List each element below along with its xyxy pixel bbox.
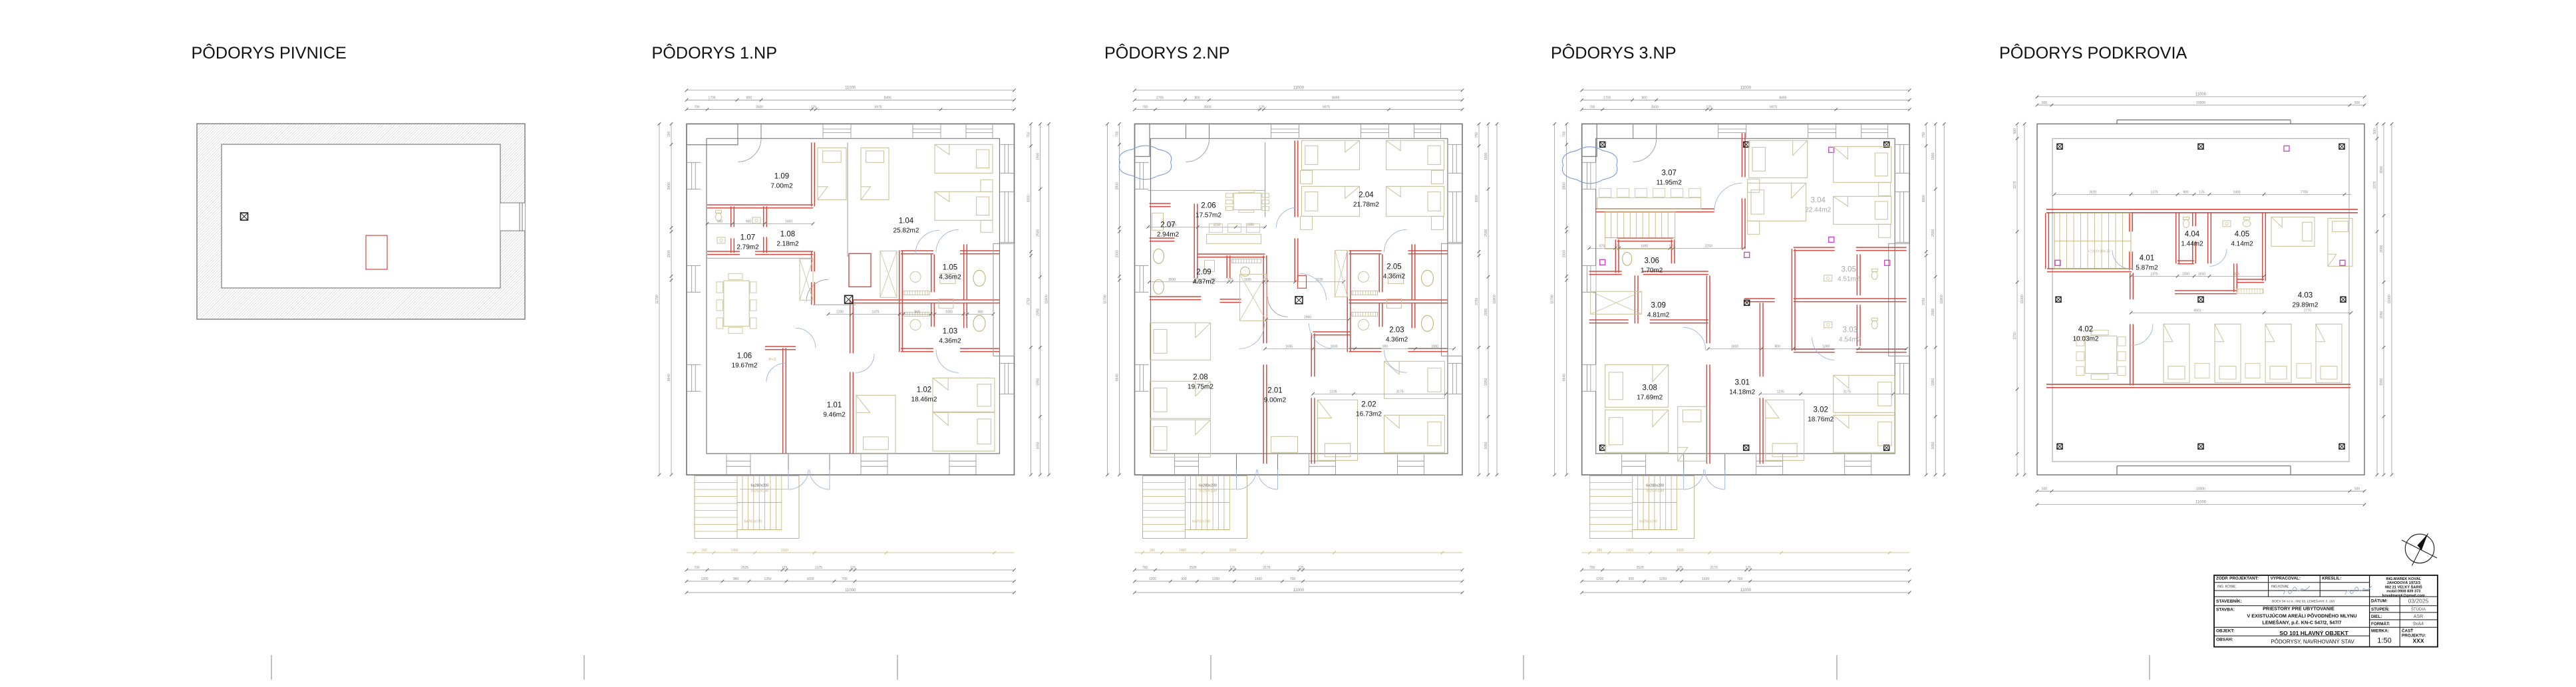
svg-text:3500: 3500 [756, 106, 763, 110]
svg-text:03/2025: 03/2025 [2408, 598, 2429, 605]
svg-text:6501: 6501 [2193, 309, 2201, 313]
svg-text:1250: 1250 [1212, 577, 1219, 581]
svg-text:3.01: 3.01 [1735, 378, 1750, 386]
svg-text:3000: 3000 [2380, 166, 2384, 174]
svg-text:125: 125 [1263, 278, 1269, 282]
svg-text:1500: 1500 [1168, 278, 1176, 282]
svg-text:980: 980 [977, 310, 983, 314]
svg-text:6x280x200: 6x280x200 [751, 484, 769, 488]
svg-text:1200: 1200 [1596, 577, 1603, 581]
svg-text:3000: 3000 [1922, 195, 1926, 202]
svg-text:3750: 3750 [1027, 298, 1031, 305]
svg-text:3.06: 3.06 [1645, 257, 1659, 265]
svg-text:2050: 2050 [1484, 309, 1488, 316]
svg-text:4.03: 4.03 [2298, 291, 2313, 299]
svg-text:2.09: 2.09 [1196, 268, 1211, 276]
svg-text:2175: 2175 [1263, 566, 1270, 570]
svg-text:25.82m2: 25.82m2 [893, 227, 919, 234]
svg-text:7705: 7705 [2301, 190, 2308, 194]
svg-text:1900: 1900 [1931, 153, 1935, 160]
svg-text:700: 700 [1737, 577, 1743, 581]
svg-text:1235: 1235 [1777, 390, 1784, 394]
svg-text:1830: 1830 [1330, 344, 1337, 348]
svg-text:11000: 11000 [2020, 295, 2024, 304]
svg-text:3375: 3375 [2373, 182, 2377, 189]
svg-text:1650: 1650 [1037, 442, 1041, 449]
svg-text:2000: 2000 [1229, 549, 1236, 553]
svg-text:2.18m2: 2.18m2 [776, 240, 799, 247]
svg-text:1705: 1705 [708, 96, 715, 100]
svg-text:2800: 2800 [667, 182, 671, 190]
svg-text:2770: 2770 [2304, 309, 2311, 313]
svg-text:5.87m2: 5.87m2 [2136, 264, 2158, 271]
svg-text:1900: 1900 [2233, 190, 2240, 194]
svg-text:500: 500 [2042, 487, 2048, 491]
svg-text:1.05: 1.05 [943, 263, 957, 271]
svg-text:2.79m2: 2.79m2 [736, 243, 759, 251]
svg-text:9x250x190: 9x250x190 [1199, 489, 1217, 493]
svg-text:1.44m2: 1.44m2 [2181, 240, 2203, 247]
svg-text:175: 175 [2199, 190, 2205, 194]
svg-text:125: 125 [811, 106, 817, 110]
svg-text:ING.MAREK KOVAĽ: ING.MAREK KOVAĽ [2386, 577, 2421, 581]
svg-text:4.36m2: 4.36m2 [939, 337, 961, 344]
svg-text:1375: 1375 [2150, 190, 2158, 194]
svg-text:900: 900 [746, 219, 752, 223]
svg-text:17.57m2: 17.57m2 [1196, 211, 1221, 219]
svg-text:800: 800 [1194, 96, 1200, 100]
svg-text:1950: 1950 [1484, 378, 1488, 386]
svg-text:2050: 2050 [1931, 309, 1935, 316]
svg-text:9x250x190: 9x250x190 [751, 489, 769, 493]
svg-text:8495: 8495 [1332, 96, 1339, 100]
svg-text:4.37m2: 4.37m2 [1193, 278, 1215, 285]
svg-text:700: 700 [1290, 577, 1296, 581]
svg-text:1000: 1000 [945, 310, 953, 314]
svg-text:3.09: 3.09 [1651, 301, 1666, 309]
svg-text:ZODP. PROJEKTANT:: ZODP. PROJEKTANT: [2216, 577, 2259, 581]
svg-text:5975: 5975 [1323, 106, 1330, 110]
svg-text:PÔDORYS 2.NP: PÔDORYS 2.NP [1104, 43, 1230, 63]
svg-text:900: 900 [1629, 577, 1635, 581]
svg-text:ČASŤ: ČASŤ [2402, 628, 2413, 634]
svg-text:750: 750 [1475, 132, 1479, 138]
svg-text:700: 700 [1589, 106, 1595, 110]
svg-text:PRIESTORY PRE UBYTOVANIE: PRIESTORY PRE UBYTOVANIE [2263, 606, 2334, 612]
svg-text:2250: 2250 [1705, 244, 1712, 248]
svg-text:1705: 1705 [1156, 96, 1164, 100]
svg-text:11000: 11000 [1740, 589, 1752, 593]
svg-text:2525: 2525 [1189, 566, 1196, 570]
svg-text:3750: 3750 [1922, 298, 1926, 305]
svg-text:700: 700 [1589, 566, 1595, 570]
svg-text:5975: 5975 [1770, 106, 1777, 110]
svg-text:KRESLIL:: KRESLIL: [2322, 577, 2341, 581]
svg-text:700: 700 [842, 577, 848, 581]
svg-text:8640: 8640 [1563, 374, 1567, 381]
svg-text:19.75m2: 19.75m2 [1188, 383, 1213, 390]
svg-text:500: 500 [2013, 128, 2017, 134]
svg-text:3750: 3750 [2013, 332, 2017, 339]
svg-text:10.03m2: 10.03m2 [2073, 335, 2099, 343]
svg-text:11000: 11000 [1740, 86, 1752, 90]
svg-text:2175: 2175 [815, 566, 822, 570]
svg-text:125: 125 [1229, 566, 1235, 570]
svg-text:4.05: 4.05 [2235, 230, 2249, 238]
svg-text:11790: 11790 [1104, 295, 1108, 304]
svg-text:10000: 10000 [2196, 487, 2205, 491]
svg-text:750: 750 [1027, 132, 1031, 138]
svg-text:1.07: 1.07 [740, 233, 755, 241]
svg-text:280: 280 [1597, 549, 1603, 553]
svg-text:3.02: 3.02 [1814, 406, 1828, 414]
svg-text:1500: 1500 [1116, 250, 1120, 257]
svg-text:3000: 3000 [1027, 195, 1031, 202]
svg-text:DIEL:: DIEL: [2371, 615, 2382, 619]
svg-text:1400: 1400 [730, 549, 738, 553]
svg-text:10000: 10000 [2196, 101, 2205, 105]
svg-text:2800: 2800 [1563, 182, 1567, 190]
svg-text:1475: 1475 [872, 310, 879, 314]
svg-text:1830: 1830 [1731, 344, 1738, 348]
svg-text:5975: 5975 [874, 106, 882, 110]
svg-text:11000: 11000 [2195, 501, 2207, 505]
svg-text:2050: 2050 [2380, 311, 2384, 319]
svg-text:11800: 11800 [1045, 295, 1049, 304]
svg-text:2.02: 2.02 [1361, 400, 1376, 408]
svg-text:11000: 11000 [2195, 93, 2207, 97]
svg-text:8640: 8640 [1116, 374, 1120, 381]
svg-text:STUPEŇ:: STUPEŇ: [2371, 606, 2390, 612]
svg-text:280: 280 [701, 549, 707, 553]
svg-text:1500: 1500 [667, 250, 671, 257]
svg-text:125: 125 [1746, 566, 1752, 570]
svg-text:700: 700 [1142, 106, 1148, 110]
svg-text:125: 125 [1669, 244, 1675, 248]
svg-text:1900: 1900 [1037, 153, 1041, 160]
svg-text:700: 700 [1563, 131, 1567, 137]
svg-text:1600: 1600 [1702, 577, 1709, 581]
svg-text:FORMÁT:: FORMÁT: [2371, 620, 2390, 626]
svg-text:1.70m2: 1.70m2 [1641, 267, 1663, 274]
svg-text:1600: 1600 [1255, 577, 1262, 581]
svg-text:125: 125 [1259, 106, 1265, 110]
svg-text:4.36m2: 4.36m2 [1383, 273, 1406, 280]
svg-text:2.03: 2.03 [1389, 326, 1404, 334]
svg-text:22.44m2: 22.44m2 [1805, 206, 1831, 213]
svg-text:PÔDORYS 3.NP: PÔDORYS 3.NP [1551, 43, 1677, 63]
svg-text:29.89m2: 29.89m2 [2293, 301, 2319, 309]
svg-text:1650: 1650 [2198, 272, 2205, 276]
svg-text:11000: 11000 [1293, 589, 1305, 593]
svg-text:11790: 11790 [655, 295, 659, 304]
svg-text:11000: 11000 [845, 86, 856, 90]
svg-text:3.07: 3.07 [1662, 169, 1677, 177]
svg-text:750: 750 [1922, 132, 1926, 138]
svg-text:1950: 1950 [1037, 378, 1041, 386]
svg-text:2.08: 2.08 [1193, 373, 1207, 381]
svg-text:4.04: 4.04 [2185, 230, 2200, 238]
svg-text:3.03: 3.03 [1843, 326, 1857, 334]
svg-text:1400: 1400 [1179, 549, 1186, 553]
svg-text:900: 900 [1382, 344, 1388, 348]
svg-text:1000: 1000 [1431, 344, 1438, 348]
svg-text:4.36m2: 4.36m2 [1386, 336, 1408, 343]
svg-text:1235: 1235 [1329, 390, 1337, 394]
svg-text:1.04: 1.04 [899, 217, 914, 225]
svg-text:21.78m2: 21.78m2 [1353, 201, 1379, 208]
svg-text:4.01: 4.01 [2140, 254, 2154, 262]
svg-text:3500: 3500 [1204, 106, 1211, 110]
svg-text:700: 700 [694, 106, 700, 110]
svg-text:1.09: 1.09 [774, 172, 789, 180]
svg-text:3175: 3175 [1396, 390, 1403, 394]
svg-text:2.06: 2.06 [1201, 202, 1215, 209]
svg-text:125: 125 [850, 566, 856, 570]
svg-text:DÁTUM:: DÁTUM: [2371, 598, 2388, 604]
svg-text:125: 125 [782, 566, 788, 570]
svg-text:900: 900 [1775, 344, 1781, 348]
svg-text:4.02: 4.02 [2078, 325, 2093, 333]
svg-text:700: 700 [1142, 566, 1148, 570]
svg-text:900: 900 [733, 577, 739, 581]
svg-text:JAHODOVÁ 1972/3: JAHODOVÁ 1972/3 [2387, 581, 2420, 585]
svg-text:3375: 3375 [2013, 182, 2017, 189]
svg-text:6x250x190: 6x250x190 [744, 520, 762, 524]
svg-text:1400: 1400 [1626, 549, 1633, 553]
svg-text:800: 800 [746, 96, 752, 100]
svg-text:2.07: 2.07 [1160, 221, 1175, 229]
svg-text:4.36m2: 4.36m2 [939, 273, 961, 281]
svg-text:800: 800 [1642, 96, 1648, 100]
svg-text:700: 700 [1116, 131, 1120, 137]
svg-text:PÔDORYS 1.NP: PÔDORYS 1.NP [652, 43, 778, 63]
svg-text:900: 900 [914, 310, 920, 314]
svg-text:V EXISTUJÚCOM AREÁLI PÔVODNÉHO: V EXISTUJÚCOM AREÁLI PÔVODNÉHO MLYNU [2247, 613, 2356, 619]
svg-text:1.02: 1.02 [917, 386, 931, 394]
svg-text:1.03: 1.03 [943, 327, 957, 335]
svg-text:125: 125 [1615, 244, 1621, 248]
svg-text:2000: 2000 [2380, 245, 2384, 253]
svg-text:11800: 11800 [1940, 295, 1944, 304]
svg-text:1.06: 1.06 [737, 352, 752, 360]
svg-text:500: 500 [2042, 101, 2048, 105]
svg-text:mobil:0908 839 373: mobil:0908 839 373 [2386, 590, 2420, 594]
svg-text:1950: 1950 [2380, 378, 2384, 386]
svg-text:3.04: 3.04 [1811, 196, 1826, 204]
svg-text:2960: 2960 [1304, 315, 1311, 319]
svg-text:7.00m2: 7.00m2 [770, 182, 793, 190]
svg-text:4.54m2: 4.54m2 [1839, 336, 1861, 343]
svg-text:8495: 8495 [1779, 96, 1786, 100]
svg-text:900: 900 [2183, 190, 2189, 194]
svg-text:1950: 1950 [1931, 378, 1935, 386]
svg-text:1450: 1450 [785, 219, 792, 223]
svg-text:11000: 11000 [1293, 86, 1305, 90]
svg-text:2500: 2500 [1931, 229, 1935, 237]
svg-text:ING. KOVAĽ: ING. KOVAĽ [2217, 585, 2236, 589]
svg-text:1.08: 1.08 [780, 230, 795, 238]
svg-text:1:50: 1:50 [2377, 637, 2391, 645]
svg-text:1250: 1250 [1659, 577, 1667, 581]
svg-text:6x280x200: 6x280x200 [1646, 484, 1664, 488]
svg-text:125: 125 [1706, 106, 1712, 110]
svg-text:18.76m2: 18.76m2 [1808, 416, 1834, 423]
svg-text:3000: 3000 [1475, 195, 1479, 202]
svg-text:2500: 2500 [1484, 229, 1488, 237]
svg-text:BOEX SK s.r.o., 082 03, LEMEŠA: BOEX SK s.r.o., 082 03, LEMEŠANY, č. 193 [2272, 599, 2334, 604]
svg-text:2.01: 2.01 [1267, 386, 1282, 394]
svg-text:1200: 1200 [701, 577, 708, 581]
svg-text:125: 125 [1298, 566, 1304, 570]
svg-text:11800: 11800 [1493, 295, 1497, 304]
svg-text:8495: 8495 [884, 96, 891, 100]
svg-text:LEMEŠANY, p.č. KN-C 547/2, 547: LEMEŠANY, p.č. KN-C 547/2, 547/7 [2262, 620, 2341, 626]
svg-text:PÔDORYS PIVNICE: PÔDORYS PIVNICE [192, 43, 347, 63]
svg-text:9.00m2: 9.00m2 [1264, 396, 1287, 404]
svg-text:1000: 1000 [1822, 344, 1830, 348]
svg-text:ŠTÚDIA: ŠTÚDIA [2411, 607, 2426, 612]
svg-text:2525: 2525 [1637, 566, 1644, 570]
svg-text:700: 700 [667, 131, 671, 137]
svg-text:1600: 1600 [806, 577, 814, 581]
svg-text:MIERKA:: MIERKA: [2371, 629, 2389, 634]
svg-text:2.05: 2.05 [1386, 263, 1401, 271]
svg-text:875: 875 [1599, 244, 1605, 248]
svg-text:3.05: 3.05 [1842, 265, 1856, 273]
svg-text:OBJEKT:: OBJEKT: [2216, 629, 2235, 634]
svg-text:500: 500 [2354, 487, 2360, 491]
svg-text:PÔDORYSY, NAVRHOVANÝ STAV: PÔDORYSY, NAVRHOVANÝ STAV [2271, 639, 2354, 645]
svg-text:PÔDORYS PODKROVIA: PÔDORYS PODKROVIA [1999, 43, 2187, 63]
svg-text:8640: 8640 [667, 374, 671, 381]
svg-text:1200: 1200 [836, 310, 844, 314]
svg-text:18.46m2: 18.46m2 [911, 396, 937, 403]
svg-text:STAVEBNÍK:: STAVEBNÍK: [2216, 598, 2242, 604]
svg-text:125: 125 [1227, 278, 1233, 282]
svg-text:280: 280 [1150, 549, 1156, 553]
svg-text:14.18m2: 14.18m2 [1729, 388, 1755, 396]
svg-text:2000: 2000 [1677, 549, 1684, 553]
svg-text:2800: 2800 [1116, 182, 1120, 190]
svg-text:3500: 3500 [1651, 106, 1659, 110]
svg-text:1695: 1695 [1244, 278, 1251, 282]
svg-text:4.51m2: 4.51m2 [1838, 275, 1860, 283]
svg-text:9xA4: 9xA4 [2413, 622, 2424, 626]
svg-text:11000: 11000 [845, 589, 856, 593]
svg-text:1000: 1000 [2182, 272, 2189, 276]
svg-text:1250: 1250 [764, 577, 771, 581]
svg-text:1650: 1650 [1931, 442, 1935, 449]
svg-text:4.14m2: 4.14m2 [2231, 240, 2253, 247]
svg-text:125: 125 [1677, 566, 1683, 570]
svg-text:082 21 VEĽKÝ ŠARIŠ: 082 21 VEĽKÝ ŠARIŠ [2385, 584, 2422, 589]
svg-text:935: 935 [2234, 272, 2240, 276]
svg-text:3175: 3175 [1844, 390, 1851, 394]
svg-text:1650: 1650 [1484, 442, 1488, 449]
svg-text:1.01: 1.01 [827, 401, 842, 409]
svg-text:OBSAH:: OBSAH: [2216, 638, 2233, 642]
svg-text:XXX: XXX [2412, 638, 2424, 644]
svg-text:900: 900 [1181, 577, 1187, 581]
svg-text:ING.KOVAĽ: ING.KOVAĽ [2271, 585, 2289, 589]
svg-text:2175: 2175 [1710, 566, 1718, 570]
svg-text:11.95m2: 11.95m2 [1657, 179, 1683, 186]
svg-text:1200: 1200 [1149, 577, 1156, 581]
svg-text:1695: 1695 [1285, 344, 1293, 348]
svg-text:1500: 1500 [1563, 250, 1567, 257]
svg-text:2000: 2000 [781, 549, 788, 553]
svg-text:6x250x190: 6x250x190 [1639, 520, 1657, 524]
svg-text:700: 700 [694, 566, 700, 570]
svg-text:2.94m2: 2.94m2 [1157, 231, 1180, 238]
svg-text:9.46m2: 9.46m2 [823, 411, 846, 418]
svg-text:2500: 2500 [1037, 229, 1041, 237]
svg-text:2050: 2050 [1037, 309, 1041, 316]
svg-text:19.67m2: 19.67m2 [732, 362, 758, 369]
svg-text:1375: 1375 [2150, 272, 2158, 276]
svg-text:P+S: P+S [768, 358, 776, 362]
svg-text:17.69m2: 17.69m2 [1637, 394, 1663, 401]
svg-text:3.08: 3.08 [1643, 384, 1657, 392]
svg-text:STAVBA:: STAVBA: [2216, 608, 2235, 613]
svg-text:SO 101 HLAVNÝ OBJEKT: SO 101 HLAVNÝ OBJEKT [2279, 629, 2348, 636]
svg-text:+2,820=184.38: +2,820=184.38 [2088, 249, 2110, 253]
svg-text:11000: 11000 [2388, 295, 2392, 304]
svg-text:1900: 1900 [1484, 153, 1488, 160]
svg-text:500: 500 [2373, 128, 2377, 134]
svg-text:3750: 3750 [1475, 298, 1479, 305]
svg-text:6x280x200: 6x280x200 [1199, 484, 1217, 488]
svg-text:500: 500 [2354, 101, 2360, 105]
svg-text:9x250x190: 9x250x190 [1646, 489, 1664, 493]
svg-text:16.73m2: 16.73m2 [1356, 410, 1382, 418]
svg-text:2525: 2525 [741, 566, 748, 570]
svg-text:2.04: 2.04 [1359, 191, 1374, 199]
svg-text:1695: 1695 [1641, 244, 1648, 248]
svg-text:VYPRACOVAL:: VYPRACOVAL: [2271, 577, 2301, 581]
svg-text:2620: 2620 [2089, 190, 2096, 194]
svg-text:1705: 1705 [1603, 96, 1611, 100]
svg-text:ASR: ASR [2414, 615, 2423, 619]
svg-text:4.81m2: 4.81m2 [1647, 311, 1670, 319]
svg-text:11790: 11790 [1551, 295, 1555, 304]
svg-text:6x250x190: 6x250x190 [1192, 520, 1210, 524]
